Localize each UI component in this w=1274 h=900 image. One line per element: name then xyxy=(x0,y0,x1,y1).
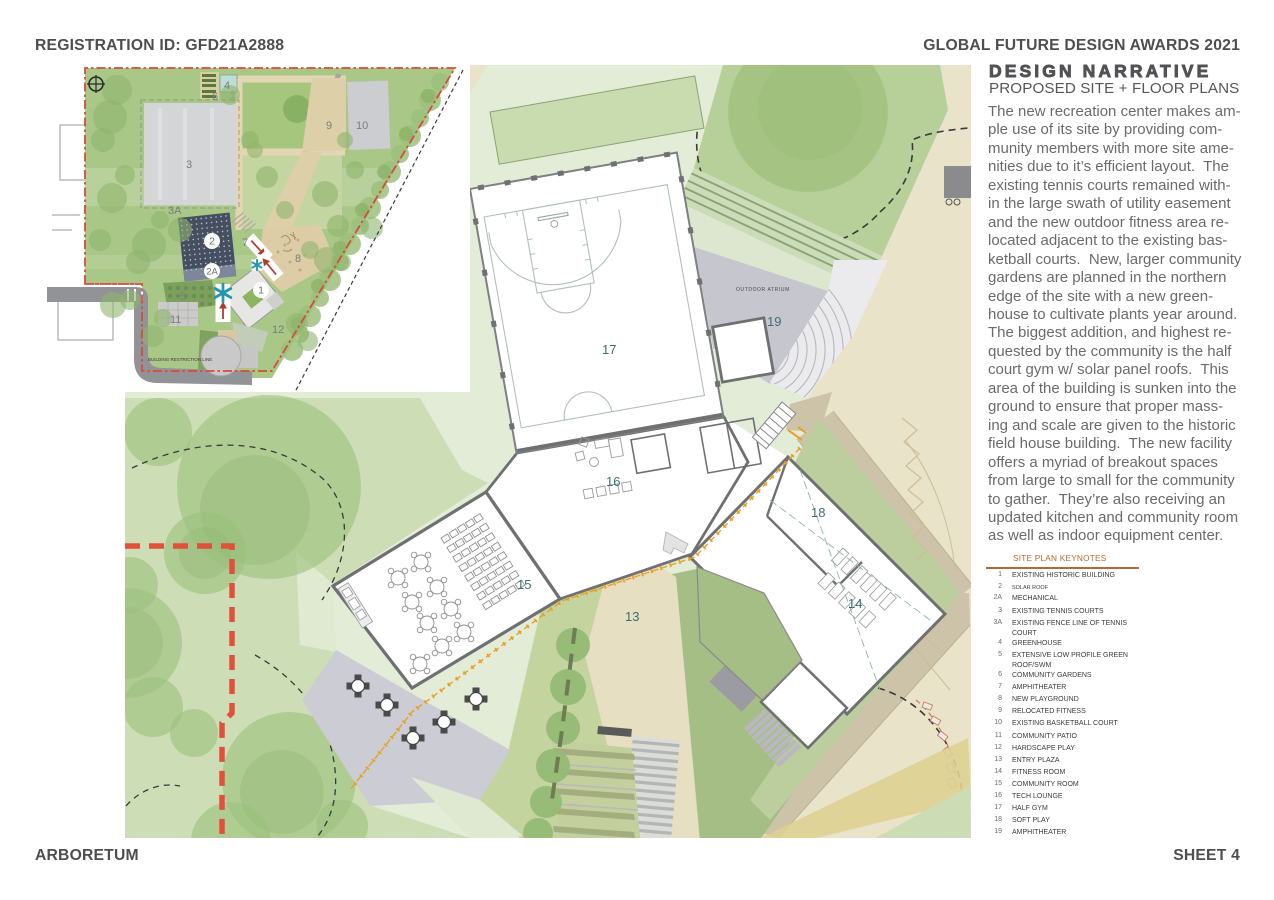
svg-text:7: 7 xyxy=(242,237,248,249)
svg-text:3: 3 xyxy=(186,159,192,171)
svg-text:15: 15 xyxy=(517,577,531,592)
svg-text:16: 16 xyxy=(606,474,620,489)
svg-text:BUILDING RESTRICTION LINE: BUILDING RESTRICTION LINE xyxy=(148,357,212,362)
svg-text:14: 14 xyxy=(848,596,862,611)
svg-text:5: 5 xyxy=(180,291,186,303)
svg-text:10: 10 xyxy=(356,120,368,132)
svg-text:6: 6 xyxy=(212,91,218,103)
svg-text:4: 4 xyxy=(224,80,230,92)
svg-text:12: 12 xyxy=(272,324,284,336)
svg-text:18: 18 xyxy=(811,505,825,520)
svg-text:13: 13 xyxy=(625,609,639,624)
svg-text:17: 17 xyxy=(602,342,616,357)
svg-text:2A: 2A xyxy=(206,267,218,278)
svg-text:2: 2 xyxy=(209,236,215,248)
svg-text:8: 8 xyxy=(295,253,301,265)
svg-text:11: 11 xyxy=(170,314,181,326)
svg-text:3A: 3A xyxy=(168,205,182,217)
svg-text:19: 19 xyxy=(767,314,781,329)
svg-text:1: 1 xyxy=(258,285,264,297)
svg-text:9: 9 xyxy=(326,120,332,132)
svg-text:OUTDOOR ATRIUM: OUTDOOR ATRIUM xyxy=(736,287,790,293)
